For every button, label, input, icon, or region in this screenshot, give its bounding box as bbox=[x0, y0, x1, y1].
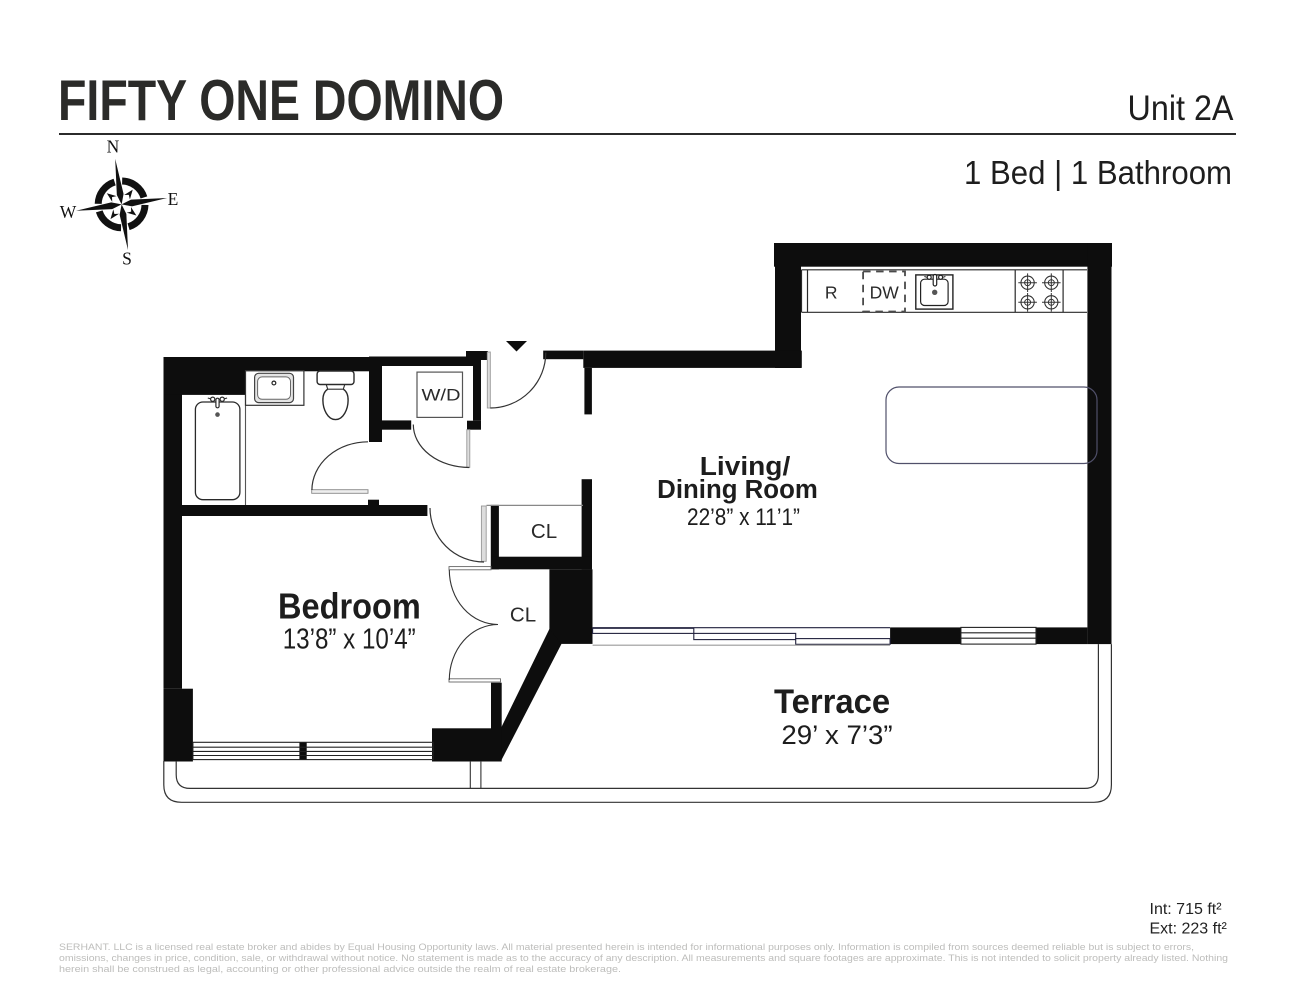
svg-text:SERHANT. LLC is a licensed rea: SERHANT. LLC is a licensed real estate b… bbox=[59, 941, 1194, 952]
svg-text:DW: DW bbox=[870, 283, 900, 303]
svg-text:W: W bbox=[60, 202, 77, 222]
svg-text:13’8” x 10’4”: 13’8” x 10’4” bbox=[283, 623, 416, 655]
svg-text:W/D: W/D bbox=[422, 385, 461, 404]
svg-text:S: S bbox=[122, 249, 132, 269]
svg-text:Terrace: Terrace bbox=[774, 683, 890, 721]
svg-text:N: N bbox=[107, 137, 120, 157]
svg-text:E: E bbox=[168, 189, 179, 209]
svg-text:Unit 2A: Unit 2A bbox=[1128, 89, 1235, 128]
svg-text:Ext: 223 ft²: Ext: 223 ft² bbox=[1150, 921, 1228, 938]
svg-text:1 Bed | 1 Bathroom: 1 Bed | 1 Bathroom bbox=[964, 154, 1232, 191]
svg-text:29’ x 7’3”: 29’ x 7’3” bbox=[781, 720, 892, 750]
svg-text:Dining Room: Dining Room bbox=[657, 476, 818, 504]
svg-text:FIFTY ONE DOMINO: FIFTY ONE DOMINO bbox=[58, 69, 504, 133]
svg-text:CL: CL bbox=[531, 520, 557, 543]
svg-text:R: R bbox=[825, 283, 838, 303]
svg-text:22’8” x 11’1”: 22’8” x 11’1” bbox=[687, 504, 800, 531]
svg-text:Bedroom: Bedroom bbox=[278, 585, 421, 626]
svg-text:CL: CL bbox=[510, 603, 536, 626]
svg-text:Int: 715 ft²: Int: 715 ft² bbox=[1150, 901, 1223, 918]
svg-text:omissions, changes in price, c: omissions, changes in price, condition, … bbox=[59, 952, 1228, 963]
svg-text:herein shall be construed as l: herein shall be construed as legal, acco… bbox=[59, 963, 621, 974]
